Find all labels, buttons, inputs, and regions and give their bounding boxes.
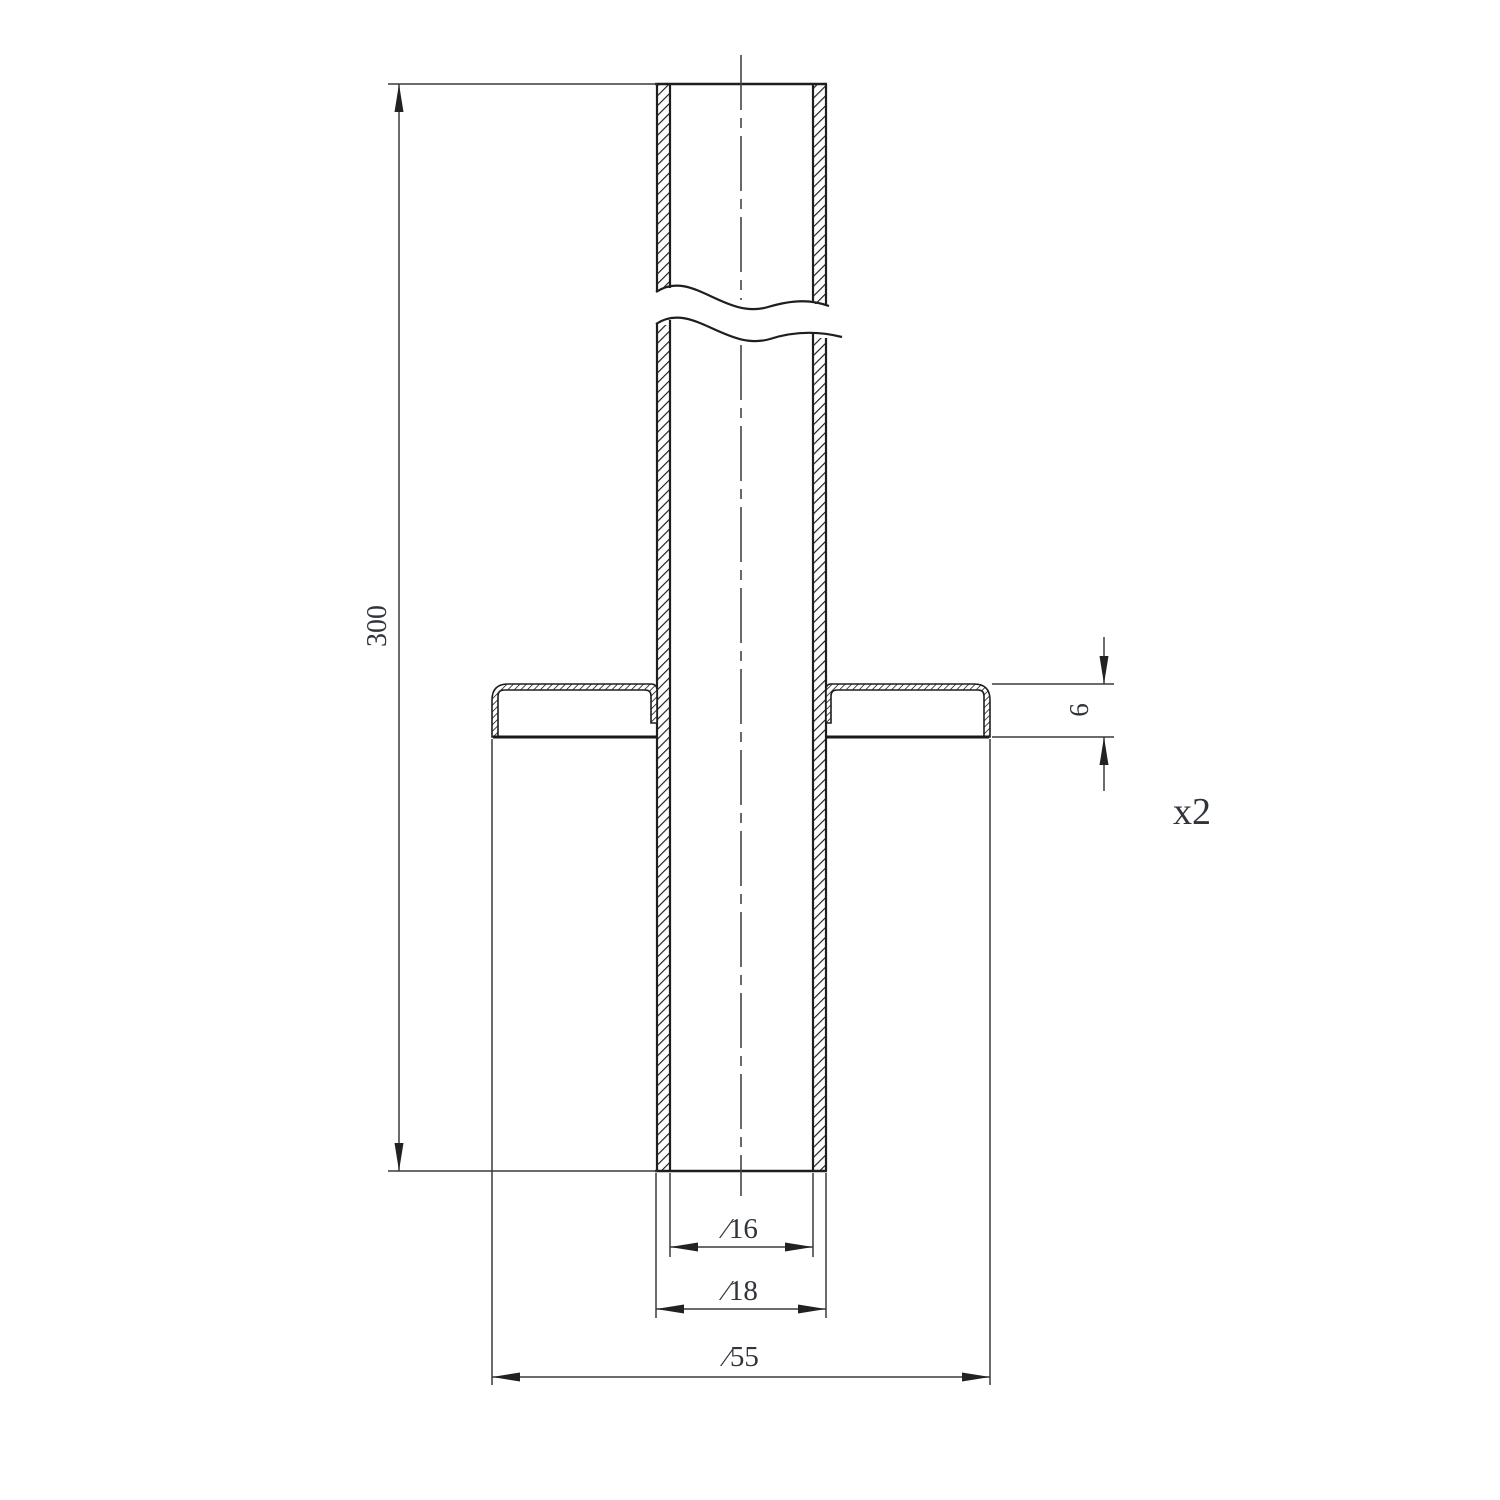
flange-diameter-dimension-label: ∕55: [719, 1341, 759, 1373]
flange-height-dimension-label: 6: [1064, 703, 1094, 717]
length-dimension-label: 300: [362, 605, 393, 647]
arrowhead-right: [785, 1243, 813, 1252]
outer-diameter-dimension-label: ∕18: [718, 1275, 758, 1307]
drawing-page: 300 6 x2 ∕16 ∕18 ∕55: [0, 0, 1500, 1500]
arrowhead-right: [798, 1305, 826, 1314]
arrowhead-left: [492, 1373, 520, 1382]
flange-left-profile: [492, 684, 657, 737]
technical-drawing: 300 6 x2 ∕16 ∕18 ∕55: [0, 0, 1500, 1500]
tube-break-line-upper: [656, 286, 829, 310]
arrowhead-left: [656, 1305, 684, 1314]
tube-wall-hatch-left-lower: [657, 325, 670, 1171]
dim-length: 300: [362, 84, 657, 1171]
arrowhead-right: [962, 1373, 990, 1382]
arrowhead-down: [1100, 656, 1109, 684]
arrowhead-up: [1100, 737, 1109, 765]
tube-section: [655, 84, 842, 1171]
tube-wall-hatch-right-lower: [813, 338, 826, 1171]
arrowhead-left: [670, 1243, 698, 1252]
quantity-label: x2: [1173, 791, 1211, 833]
arrowhead-down: [395, 1143, 404, 1171]
tube-wall-hatch-right-upper: [813, 85, 826, 304]
inner-diameter-dimension-label: ∕16: [718, 1213, 758, 1245]
dim-flange-height: 6: [992, 637, 1114, 791]
arrowhead-up: [395, 84, 404, 112]
flange-right-profile: [826, 684, 990, 737]
tube-wall-hatch-left-upper: [657, 85, 670, 290]
